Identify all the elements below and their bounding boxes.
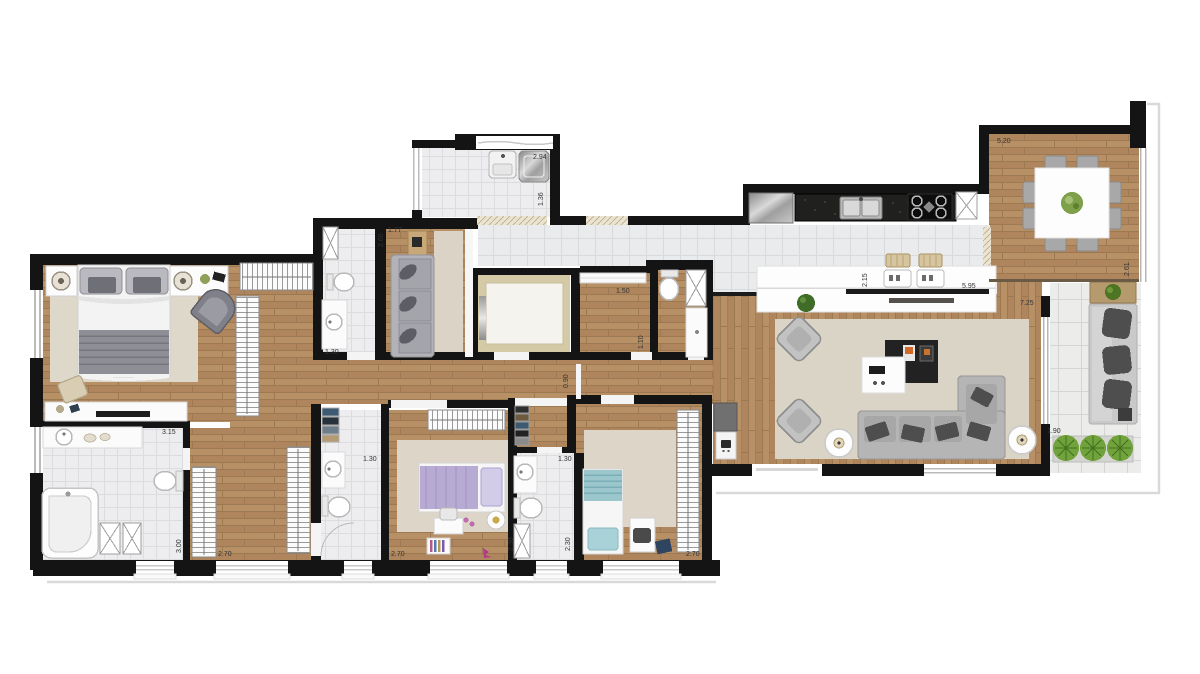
svg-text:1.90: 1.90 bbox=[1047, 428, 1061, 435]
svg-text:2.61: 2.61 bbox=[1124, 262, 1131, 276]
svg-text:1.30: 1.30 bbox=[325, 349, 339, 356]
svg-text:2.30: 2.30 bbox=[565, 537, 572, 551]
svg-text:5.95: 5.95 bbox=[962, 283, 976, 290]
svg-text:2.60: 2.60 bbox=[378, 233, 385, 247]
svg-text:1.77: 1.77 bbox=[388, 227, 402, 234]
svg-text:5.20: 5.20 bbox=[997, 138, 1011, 145]
svg-text:2.70: 2.70 bbox=[218, 551, 232, 558]
svg-text:1.50: 1.50 bbox=[616, 288, 630, 295]
svg-text:2.94: 2.94 bbox=[533, 154, 547, 161]
svg-text:3.00: 3.00 bbox=[176, 539, 183, 553]
svg-text:1.10: 1.10 bbox=[638, 335, 645, 349]
svg-text:0.90: 0.90 bbox=[563, 374, 570, 388]
svg-text:1.30: 1.30 bbox=[558, 456, 572, 463]
svg-text:1.30: 1.30 bbox=[363, 456, 377, 463]
svg-text:7.25: 7.25 bbox=[1020, 300, 1034, 307]
svg-text:2.15: 2.15 bbox=[862, 273, 869, 287]
svg-text:1.36: 1.36 bbox=[538, 192, 545, 206]
svg-text:3.15: 3.15 bbox=[162, 429, 176, 436]
svg-text:2.70: 2.70 bbox=[686, 551, 700, 558]
svg-text:2.30: 2.30 bbox=[508, 537, 515, 551]
svg-text:2.70: 2.70 bbox=[391, 551, 405, 558]
